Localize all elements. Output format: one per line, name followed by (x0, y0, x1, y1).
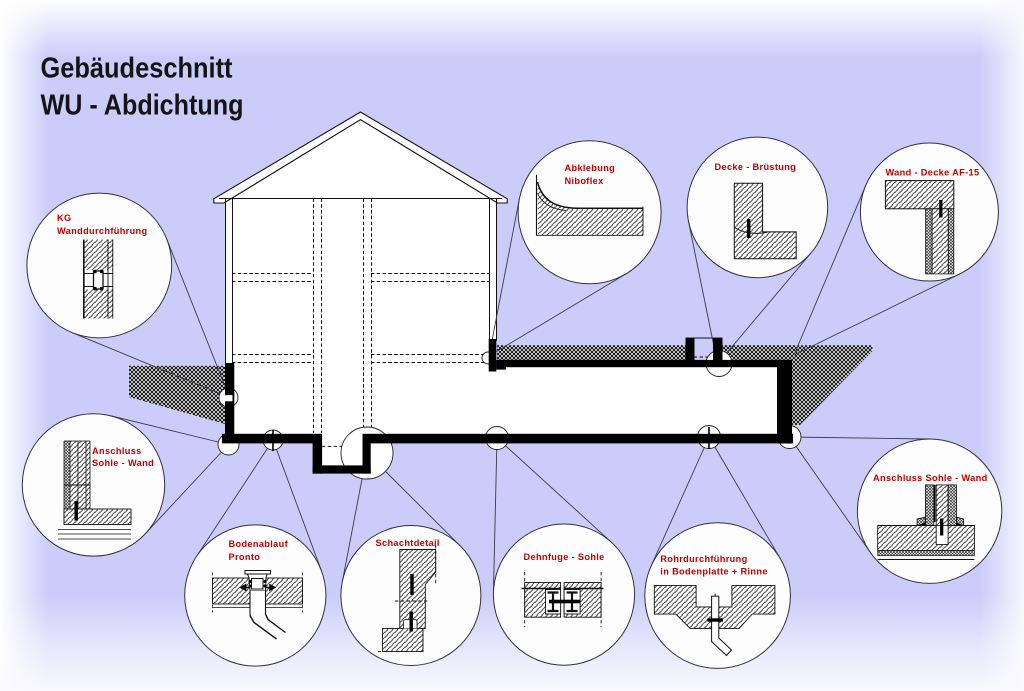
svg-text:in Bodenplatte + Rinne: in Bodenplatte + Rinne (660, 567, 768, 577)
svg-text:Rohrdurchführung: Rohrdurchführung (660, 554, 747, 564)
svg-text:KG: KG (57, 213, 71, 223)
svg-text:Niboflex: Niboflex (565, 176, 605, 186)
svg-text:Sohle - Wand: Sohle - Wand (92, 458, 154, 468)
svg-text:Wand - Decke AF-15: Wand - Decke AF-15 (886, 168, 980, 178)
svg-text:Anschluss: Anschluss (92, 446, 142, 456)
svg-text:Bodenablauf: Bodenablauf (229, 539, 289, 549)
svg-text:Decke - Brüstung: Decke - Brüstung (715, 162, 797, 172)
svg-text:Wanddurchführung: Wanddurchführung (57, 226, 147, 236)
svg-text:Gebäudeschnitt: Gebäudeschnitt (41, 53, 233, 85)
svg-text:Abklebung: Abklebung (565, 163, 616, 173)
svg-text:WU - Abdichtung: WU - Abdichtung (41, 90, 244, 122)
svg-text:Dehnfuge - Sohle: Dehnfuge - Sohle (524, 552, 605, 562)
svg-text:Anschluss Sohle - Wand: Anschluss Sohle - Wand (873, 473, 988, 483)
svg-text:Schachtdetail: Schachtdetail (376, 538, 440, 548)
svg-text:Pronto: Pronto (229, 552, 261, 562)
